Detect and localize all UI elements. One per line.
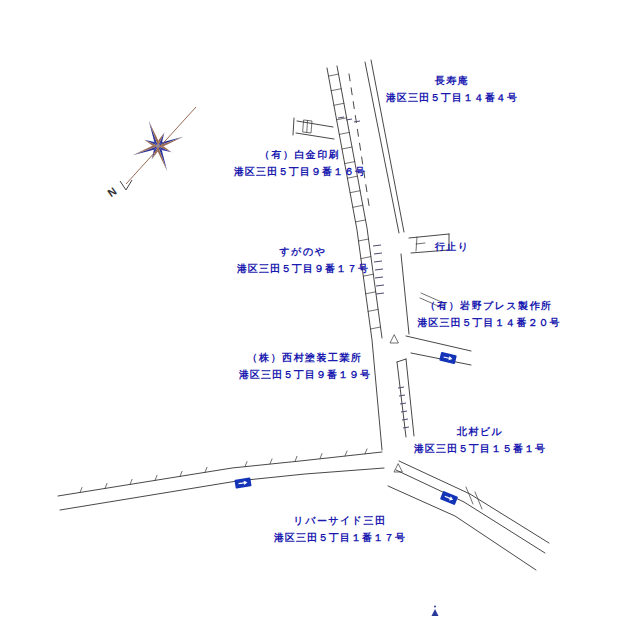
compass-rose-icon: N bbox=[105, 107, 196, 199]
one-way-sign-icon bbox=[439, 352, 457, 364]
dead-end-text: 行止り bbox=[435, 238, 470, 255]
building-name: リバーサイド三田 bbox=[274, 512, 406, 529]
main-road-right-edge-mid bbox=[401, 254, 409, 334]
lower-left-road-lower-edge bbox=[60, 468, 384, 510]
left-side-street bbox=[293, 118, 334, 139]
building-address: 港区三田５丁目１４番２０号 bbox=[418, 314, 561, 331]
building-name: 長寿庵 bbox=[386, 72, 518, 89]
building-address: 港区三田５丁目１４番４号 bbox=[386, 89, 518, 106]
map-label-riverside-mita: リバーサイド三田 港区三田５丁目１番１７号 bbox=[274, 512, 406, 546]
map-label-suganoya: すがのや 港区三田５丁目９番１７号 bbox=[237, 243, 369, 277]
narrow-lane bbox=[397, 359, 414, 437]
main-road-center-dashed-line bbox=[349, 74, 370, 212]
map-label-dead-end: 行止り bbox=[435, 238, 470, 255]
map-label-chojuan: 長寿庵 港区三田５丁目１４番４号 bbox=[386, 72, 518, 106]
lower-left-road-upper-edge bbox=[58, 452, 382, 496]
map-label-nishimura-tosou: （株）西村塗装工業所 港区三田５丁目９番１９号 bbox=[239, 349, 371, 383]
lower-right-road-ticks bbox=[466, 487, 482, 509]
lane-text-marks bbox=[398, 387, 409, 428]
main-road-sidewalk-line bbox=[337, 66, 382, 338]
building-address: 港区三田５丁目１番１７号 bbox=[274, 529, 406, 546]
one-way-sign-icon bbox=[440, 491, 458, 505]
building-name: （有）岩野プレス製作所 bbox=[418, 297, 561, 314]
map-label-kitamura-biru: 北村ビル 港区三田５丁目１５番１号 bbox=[414, 423, 546, 457]
main-road-ladder-rungs bbox=[329, 74, 381, 329]
compass-needle-line bbox=[126, 107, 196, 184]
building-name: すがのや bbox=[237, 243, 369, 260]
one-way-sign-icon bbox=[234, 477, 251, 488]
side-street-text-marks bbox=[338, 117, 360, 122]
building-name: （有）白金印刷 bbox=[234, 146, 366, 163]
lower-right-road-edge-c bbox=[388, 486, 536, 570]
compass-north-letter: N bbox=[105, 185, 118, 199]
map-label-iwano-press: （有）岩野プレス製作所 港区三田５丁目１４番２０号 bbox=[418, 297, 561, 331]
dead-end-street-marks bbox=[416, 237, 425, 251]
compass-arrowhead bbox=[120, 180, 132, 190]
lower-right-road-edge-b bbox=[396, 470, 545, 553]
survey-marker-icon bbox=[432, 606, 439, 617]
utility-triangle-marker-1 bbox=[390, 335, 398, 343]
map-page: N 長寿庵 港区三田５丁目１４番４号 （有）白金 bbox=[0, 0, 635, 640]
building-name: （株）西村塗装工業所 bbox=[239, 349, 371, 366]
building-name: 北村ビル bbox=[414, 423, 546, 440]
map-label-shirokane-insatsu: （有）白金印刷 港区三田５丁目９番１６号 bbox=[234, 146, 366, 180]
building-address: 港区三田５丁目１５番１号 bbox=[414, 440, 546, 457]
lower-right-road-edge-a bbox=[399, 461, 549, 543]
building-address: 港区三田５丁目９番１７号 bbox=[237, 260, 369, 277]
building-address: 港区三田５丁目９番１６号 bbox=[234, 163, 366, 180]
right-branch-street bbox=[406, 336, 471, 365]
building-address: 港区三田５丁目９番１９号 bbox=[239, 366, 371, 383]
